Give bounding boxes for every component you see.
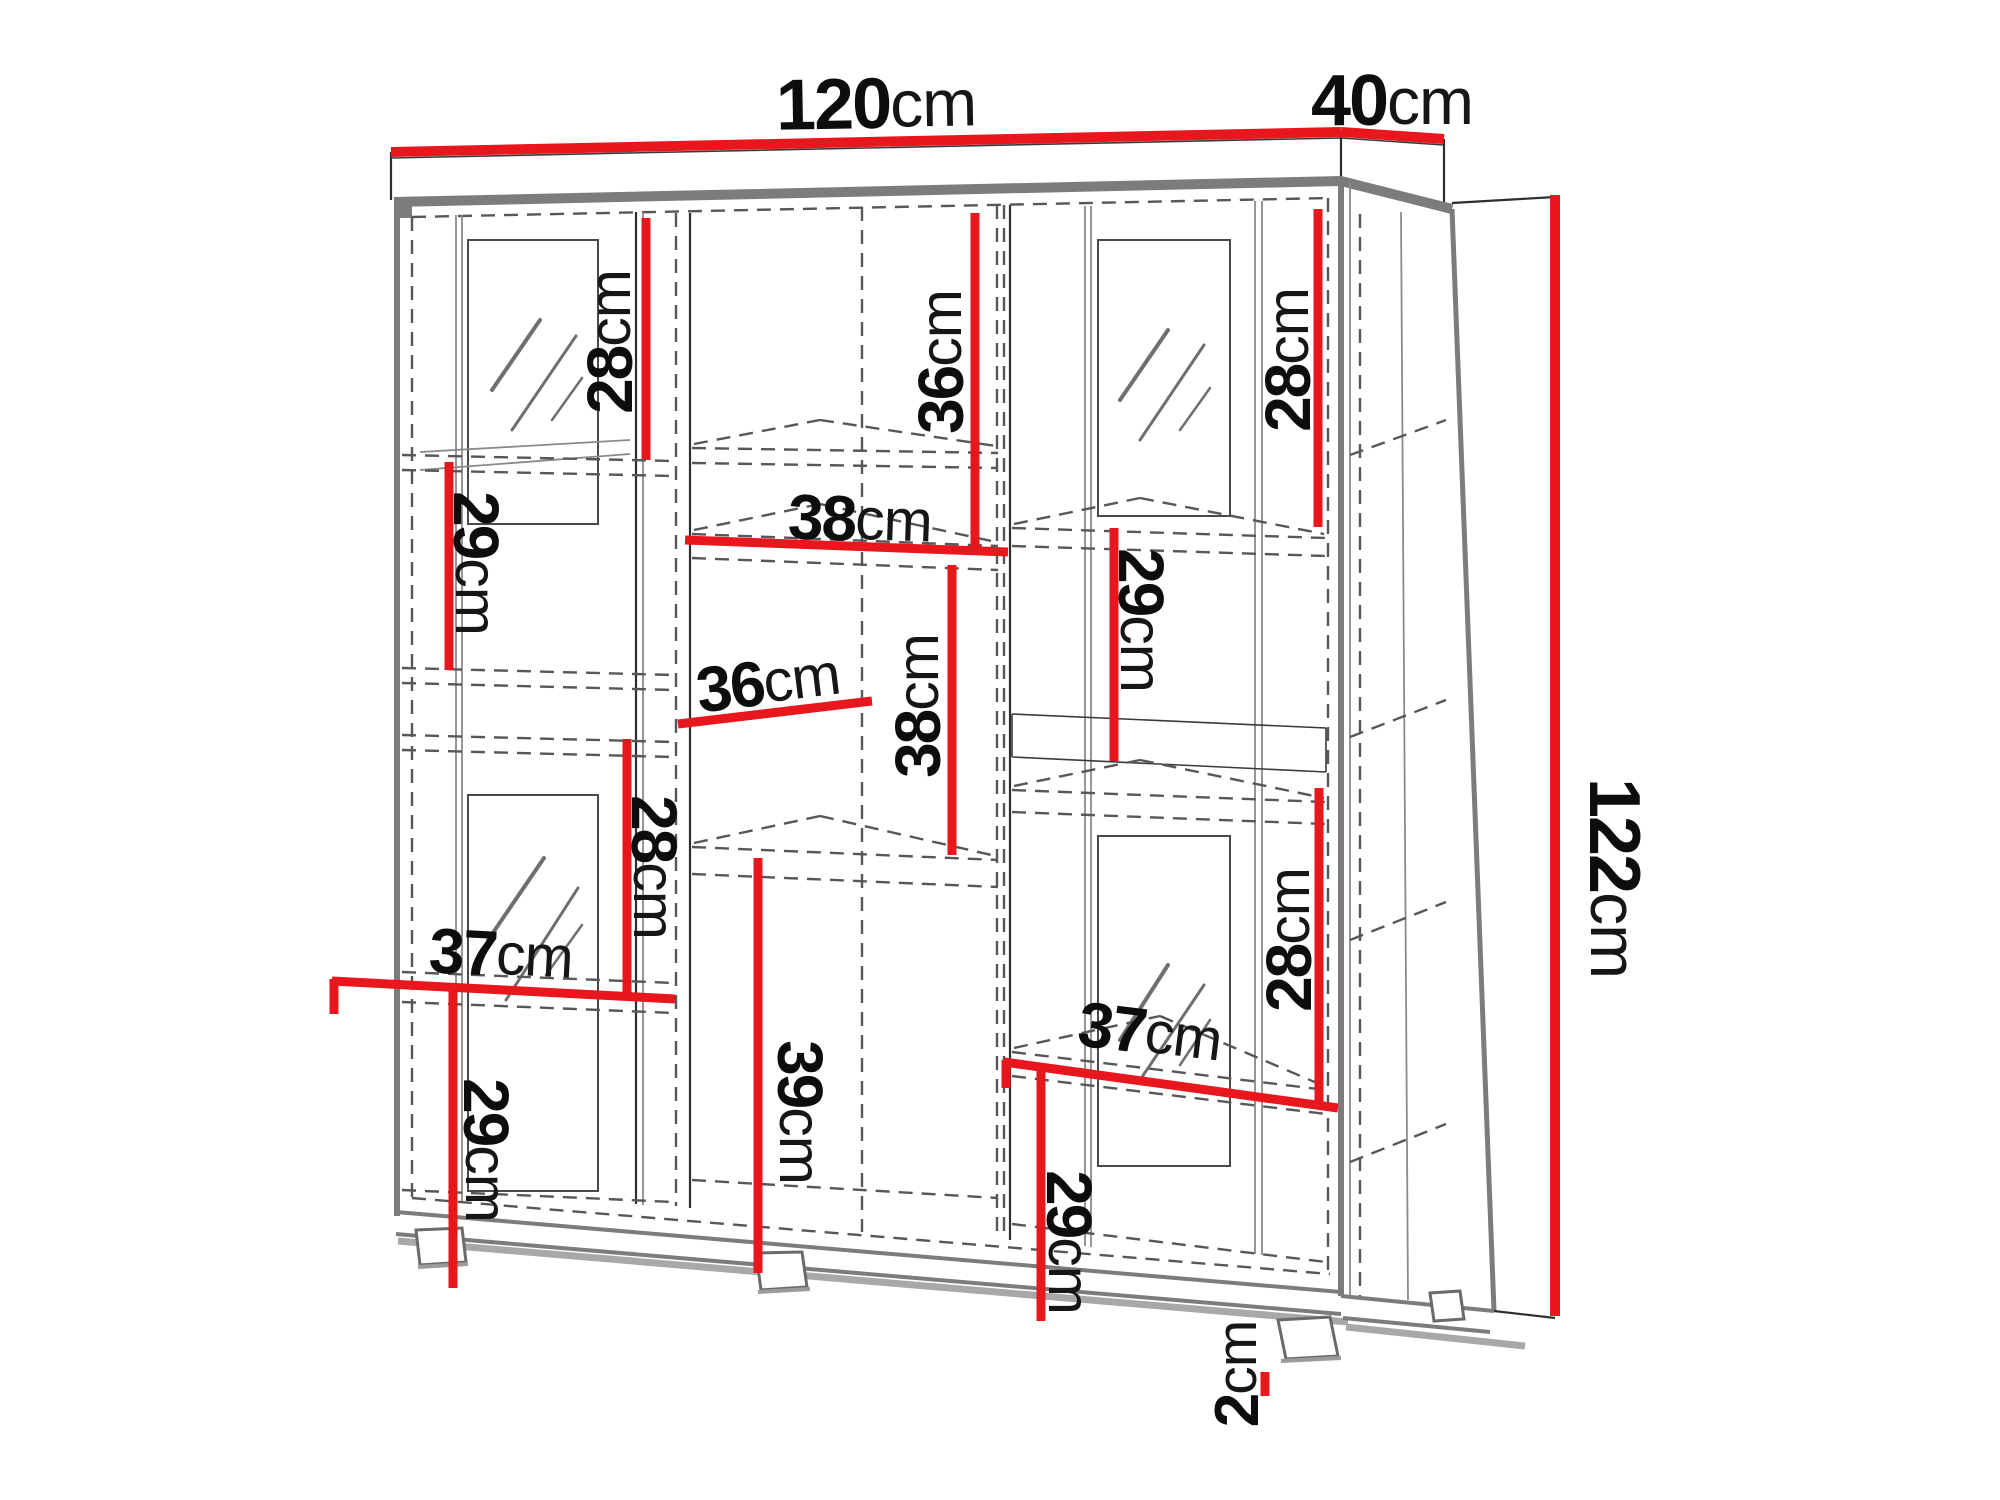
foot (756, 1252, 807, 1290)
side-panel-line (1452, 209, 1494, 1311)
dimension-label-left-low-28: 28cm (618, 795, 690, 939)
left-shelves-line (402, 470, 674, 476)
dimension-left-mid-29: 29cm (440, 462, 512, 670)
dimension-diagram: 120cm40cm122cm28cm29cm28cm37cm29cm36cm38… (0, 0, 2000, 1500)
dimension-label-right-37: 37cm (1074, 988, 1226, 1077)
dimension-connectors-line (1494, 1311, 1555, 1318)
left-shelves-line (402, 683, 674, 690)
dimension-mid-36-depth: 36cm (678, 638, 872, 727)
glass-shine-icon-line (1120, 330, 1168, 400)
dimension-right-low-28: 28cm (1253, 788, 1325, 1105)
dimension-depth-top: 40cm (1311, 61, 1473, 141)
dimension-label-width-top: 120cm (775, 62, 976, 145)
dimension-label-height-right-line: cm (1577, 892, 1651, 978)
side-panel-line (1350, 902, 1446, 940)
left-shelves-line (402, 735, 674, 742)
right-shelves-line (1014, 760, 1140, 786)
glass-shine-icon (492, 320, 582, 430)
dimension-label-left-bot-29: 29cm (450, 1078, 522, 1222)
side-panel-line (1346, 1327, 1525, 1346)
dimension-label-right-bot-29-line: cm (1036, 1237, 1102, 1314)
dimension-label-mid-39-line: 39 (764, 1040, 836, 1108)
dimension-label-depth-top-line: cm (1387, 64, 1473, 138)
foot (1430, 1291, 1464, 1321)
glass-shine-icon (1120, 330, 1210, 440)
middle-shelf-column-line (692, 463, 998, 468)
dimension-label-mid-top-36-line: 36 (905, 366, 977, 434)
dimension-label-mid-39-line: cm (767, 1107, 833, 1184)
dimension-label-right-bot-29-line: 29 (1033, 1170, 1105, 1238)
dimension-label-right-top-28: 28cm (1252, 288, 1324, 432)
dimension-label-right-37-line: cm (1141, 999, 1225, 1074)
interior-outline-line (412, 1198, 1330, 1274)
dimension-label-depth-top: 40cm (1311, 61, 1473, 141)
dimension-left-low-28: 28cm (618, 739, 690, 996)
dimension-label-foot-2-line: 2 (1203, 1395, 1272, 1427)
left-shelves-line (402, 455, 674, 461)
middle-shelf-column-line (692, 874, 998, 887)
dimension-label-mid-36-depth: 36cm (692, 638, 844, 727)
glass-pane-top-right (1098, 240, 1230, 516)
dimension-label-right-29: 29cm (1105, 548, 1177, 692)
dimension-label-height-right: 122cm (1574, 778, 1654, 978)
interior-outline (412, 198, 1330, 1274)
left-shelves-line (402, 750, 674, 757)
side-panel-line (1350, 1124, 1446, 1162)
dimension-label-left-mid-29: 29cm (440, 491, 512, 635)
side-panel (1341, 183, 1525, 1346)
left-shelves-line (402, 668, 674, 675)
right-shelves-line (1140, 760, 1324, 798)
dimension-connectors (1452, 197, 1555, 1318)
dimension-label-right-29-line: 29 (1105, 548, 1177, 616)
dimension-label-left-bot-29-line: cm (453, 1145, 519, 1222)
dimension-right-bot-29: 29cm (1033, 1067, 1105, 1321)
dimension-label-right-29-line: cm (1108, 615, 1174, 692)
glass-shine-icon-line (492, 320, 540, 390)
cabinet-diagram-svg: 120cm40cm122cm28cm29cm28cm37cm29cm36cm38… (0, 0, 2000, 1500)
middle-shelf-column-line (694, 420, 820, 444)
side-panel-line (1350, 700, 1446, 737)
dimension-label-depth-top-line: 40 (1311, 61, 1387, 141)
dimension-label-mid-38-v-line: cm (885, 634, 951, 711)
dimension-label-left-top-28-line: cm (577, 270, 643, 347)
dimension-label-left-mid-29-line: 29 (440, 491, 512, 559)
right-shelves-line (1014, 498, 1140, 524)
dimension-label-right-low-28: 28cm (1253, 868, 1325, 1012)
side-panel-line (1401, 212, 1408, 1300)
left-shelves-line (402, 1002, 674, 1013)
right-shelves-line (1012, 714, 1326, 728)
dimension-label-left-low-28-line: cm (621, 862, 687, 939)
dimension-label-mid-38-v-line: 38 (882, 710, 954, 778)
dimension-label-left-top-28: 28cm (574, 270, 646, 414)
dimension-label-left-37: 37cm (427, 914, 574, 993)
dimension-label-foot-2: 2cm (1203, 1321, 1272, 1427)
dimension-label-width-top-line: cm (889, 65, 976, 140)
dimension-label-left-low-28-line: 28 (618, 795, 690, 863)
dimension-label-mid-39: 39cm (764, 1040, 836, 1184)
dimension-label-foot-2-line: cm (1205, 1321, 1269, 1395)
dimension-label-left-37-line: 37 (427, 914, 498, 989)
side-panel-line (1350, 420, 1446, 455)
right-shelves-line (1012, 812, 1326, 824)
dimension-label-mid-38-shelf-line: 38 (787, 481, 857, 555)
dimension-label-right-top-28-line: cm (1255, 288, 1321, 365)
dimension-label-mid-36-depth-line: cm (759, 640, 843, 715)
cabinet-top-line (399, 203, 412, 218)
side-panel-line (1341, 1296, 1494, 1311)
dimension-label-left-37-line: cm (495, 921, 575, 991)
dimension-mid-38-shelf: 38cm (685, 481, 1008, 558)
dimension-right-29: 29cm (1105, 528, 1177, 761)
glass-shine-icon-line (1180, 388, 1210, 430)
cabinet-top-line (394, 181, 1452, 209)
dimension-label-left-top-28-line: 28 (574, 346, 646, 414)
dimension-label-height-right-line: 122 (1574, 778, 1654, 892)
middle-shelf-column-line (692, 1180, 998, 1198)
dimension-label-left-mid-29-line: cm (443, 558, 509, 635)
cabinet-carcass (396, 181, 1348, 1322)
foot (1278, 1317, 1338, 1359)
dimension-label-mid-38-v: 38cm (882, 634, 954, 778)
dimension-foot-2: 2cm (1203, 1321, 1272, 1427)
dimension-label-width-top-line: 120 (775, 64, 891, 146)
dimension-connectors-line (1452, 197, 1555, 203)
dimension-height-right: 122cm (1555, 195, 1654, 1316)
dimension-label-right-37-line: 37 (1074, 988, 1149, 1068)
dimension-label-mid-top-36: 36cm (905, 290, 977, 434)
dimension-width-top: 120cm (391, 62, 1341, 152)
dimension-label-left-bot-29-line: 29 (450, 1078, 522, 1146)
dimension-label-mid-36-depth-line: 36 (692, 647, 768, 727)
foot (416, 1228, 466, 1265)
dimension-mid-38-v: 38cm (882, 565, 954, 855)
dimension-label-mid-38-shelf: 38cm (787, 481, 933, 558)
right-shelves-line (1012, 757, 1326, 772)
right-shelves-line (1012, 528, 1326, 538)
dimension-label-mid-38-shelf-line: cm (854, 486, 933, 555)
middle-shelf-column-line (694, 816, 820, 843)
middle-shelf-column-line (820, 816, 996, 856)
right-shelves-line (1012, 790, 1326, 802)
dimension-mid-39: 39cm (758, 858, 836, 1273)
dimension-label-right-low-28-line: cm (1256, 868, 1322, 945)
dimension-label-mid-top-36-line: cm (908, 290, 974, 367)
dimension-label-right-low-28-line: 28 (1253, 944, 1325, 1012)
middle-shelf-column-line (692, 448, 998, 453)
dimension-label-right-bot-29: 29cm (1033, 1170, 1105, 1314)
dimension-label-right-top-28-line: 28 (1252, 364, 1324, 432)
